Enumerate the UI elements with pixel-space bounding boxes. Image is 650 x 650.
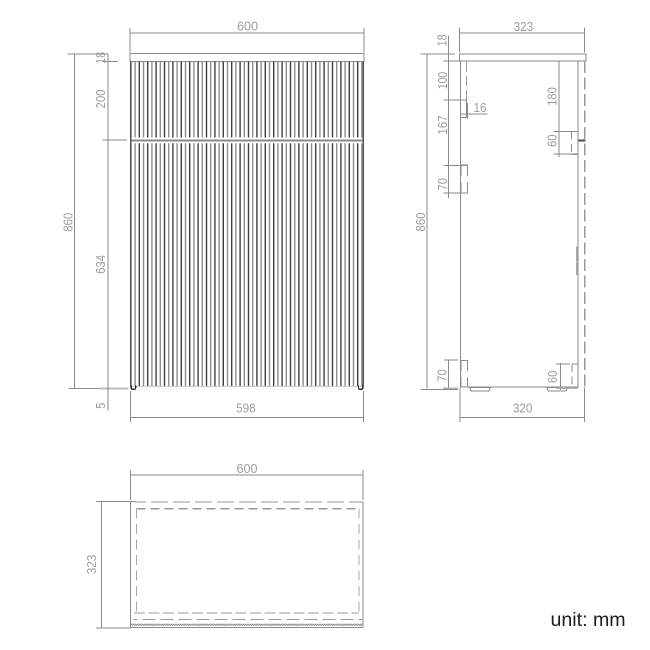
svg-text:5: 5 [93,403,108,409]
svg-text:16: 16 [474,100,487,115]
svg-text:323: 323 [84,555,99,575]
svg-text:18: 18 [93,52,108,64]
svg-text:600: 600 [237,19,258,34]
svg-text:598: 598 [236,401,256,416]
svg-text:60: 60 [545,371,560,384]
svg-text:600: 600 [237,461,258,476]
svg-text:60: 60 [544,134,559,147]
svg-text:70: 70 [435,369,450,382]
svg-text:100: 100 [435,72,450,90]
svg-text:18: 18 [434,34,449,46]
svg-text:167: 167 [435,115,450,135]
svg-text:180: 180 [544,87,559,106]
svg-text:70: 70 [435,178,450,191]
svg-text:860: 860 [61,213,76,232]
svg-text:320: 320 [513,401,533,416]
svg-text:860: 860 [413,213,428,232]
svg-text:unit: mm: unit: mm [551,609,626,631]
svg-text:323: 323 [514,19,534,34]
svg-text:634: 634 [93,255,108,274]
svg-text:200: 200 [93,90,108,109]
